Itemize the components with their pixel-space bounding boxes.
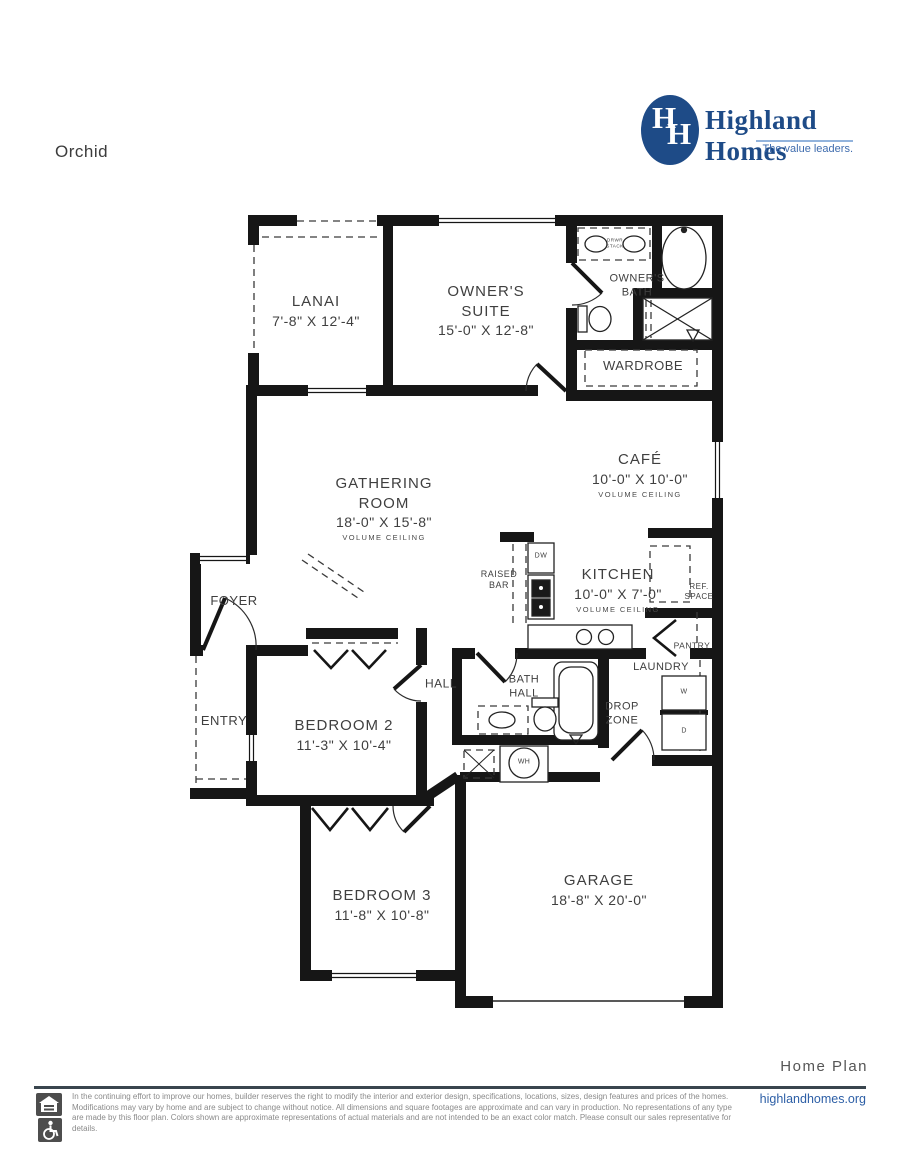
room-note: VOLUME CEILING bbox=[574, 604, 662, 613]
footer-label: Home Plan bbox=[780, 1058, 868, 1075]
label-water-heater: WH bbox=[518, 759, 530, 768]
room-label-laundry: LAUNDRY bbox=[633, 661, 689, 675]
room-label-hall: HALL bbox=[425, 677, 457, 692]
door-swings bbox=[225, 293, 654, 832]
room-label-garage: GARAGE 18'-8" X 20'-0" bbox=[551, 871, 647, 908]
website-link[interactable]: highlandhomes.org bbox=[760, 1092, 866, 1106]
room-label-foyer: FOYER bbox=[210, 593, 257, 609]
room-dims: 10'-0" X 7'-0" bbox=[574, 585, 662, 601]
hall-bath-sink bbox=[489, 712, 515, 728]
label-dishwasher: DW bbox=[535, 553, 548, 562]
room-name: CAFÉ bbox=[618, 450, 662, 470]
room-label-bedroom2: BEDROOM 2 11'-3" X 10'-4" bbox=[294, 716, 393, 753]
room-dims: 18'-8" X 20'-0" bbox=[551, 891, 647, 907]
room-label-lanai: LANAI 7'-8" X 12'-4" bbox=[272, 292, 360, 329]
hall-toilet-bowl bbox=[534, 707, 556, 731]
room-label-drop-zone: DROP ZONE bbox=[598, 700, 646, 728]
room-dims: 11'-8" X 10'-8" bbox=[332, 906, 431, 922]
room-name: GARAGE bbox=[564, 871, 634, 891]
room-note: VOLUME CEILING bbox=[592, 489, 688, 498]
hall-bath-door-leaf bbox=[477, 653, 505, 682]
room-label-owners-bath: OWNER'S BATH bbox=[599, 272, 675, 300]
room-label-pantry: PANTRY bbox=[674, 641, 711, 652]
room-label-bedroom3: BEDROOM 3 11'-8" X 10'-8" bbox=[332, 886, 431, 923]
room-note: VOLUME CEILING bbox=[322, 533, 447, 542]
owners-bath-door-leaf bbox=[572, 263, 602, 293]
room-dims: 11'-3" X 10'-4" bbox=[294, 736, 393, 752]
room-name: GATHERING ROOM bbox=[322, 474, 447, 513]
room-label-gathering-room: GATHERING ROOM 18'-0" X 15'-8" VOLUME CE… bbox=[322, 474, 447, 542]
disclaimer-text: In the continuing effort to improve our … bbox=[72, 1092, 742, 1134]
label-ref-space: REF. SPACE bbox=[678, 582, 720, 602]
room-label-entry: ENTRY bbox=[201, 713, 247, 729]
label-raised-bar: RAISED BAR bbox=[472, 569, 526, 592]
floor-plan-drawing bbox=[0, 0, 900, 1165]
bedroom2-closet-bifold bbox=[314, 650, 348, 668]
room-name: BEDROOM 2 bbox=[294, 716, 393, 736]
bedroom3-closet-bifold bbox=[312, 808, 348, 830]
floor-plan-page: Orchid H H Highland Homes The value lead… bbox=[0, 0, 900, 1165]
label-drawer-stack: DRWR STACK bbox=[601, 237, 629, 248]
bedroom3-door-leaf bbox=[404, 806, 430, 832]
room-name: KITCHEN bbox=[582, 565, 655, 585]
bedroom2-door-leaf bbox=[394, 665, 421, 689]
label-dryer: D bbox=[681, 728, 686, 737]
room-dims: 7'-8" X 12'-4" bbox=[272, 312, 360, 328]
owners-toilet-tank bbox=[578, 306, 587, 332]
room-dims: 15'-0" X 12'-8" bbox=[436, 322, 536, 338]
label-washer: W bbox=[681, 689, 688, 698]
room-label-cafe: CAFÉ 10'-0" X 10'-0" VOLUME CEILING bbox=[592, 450, 688, 499]
room-name: LANAI bbox=[292, 292, 340, 312]
room-dims: 10'-0" X 10'-0" bbox=[592, 470, 688, 486]
room-label-hall-bath: BATH HALL bbox=[502, 673, 546, 701]
room-name: BEDROOM 3 bbox=[332, 886, 431, 906]
owners-suite-door-leaf bbox=[537, 364, 566, 391]
kitchen-counter bbox=[528, 625, 632, 649]
owners-toilet-bowl bbox=[589, 307, 611, 332]
room-dims: 18'-0" X 15'-8" bbox=[322, 514, 447, 530]
room-label-wardrobe: WARDROBE bbox=[603, 358, 683, 374]
room-label-kitchen: KITCHEN 10'-0" X 7'-0" VOLUME CEILING bbox=[574, 565, 662, 614]
room-name: OWNER'S SUITE bbox=[436, 282, 536, 321]
garage-entry-door-leaf bbox=[612, 730, 642, 760]
room-label-owners-suite: OWNER'S SUITE 15'-0" X 12'-8" bbox=[436, 282, 536, 338]
footer-rule bbox=[34, 1086, 866, 1089]
